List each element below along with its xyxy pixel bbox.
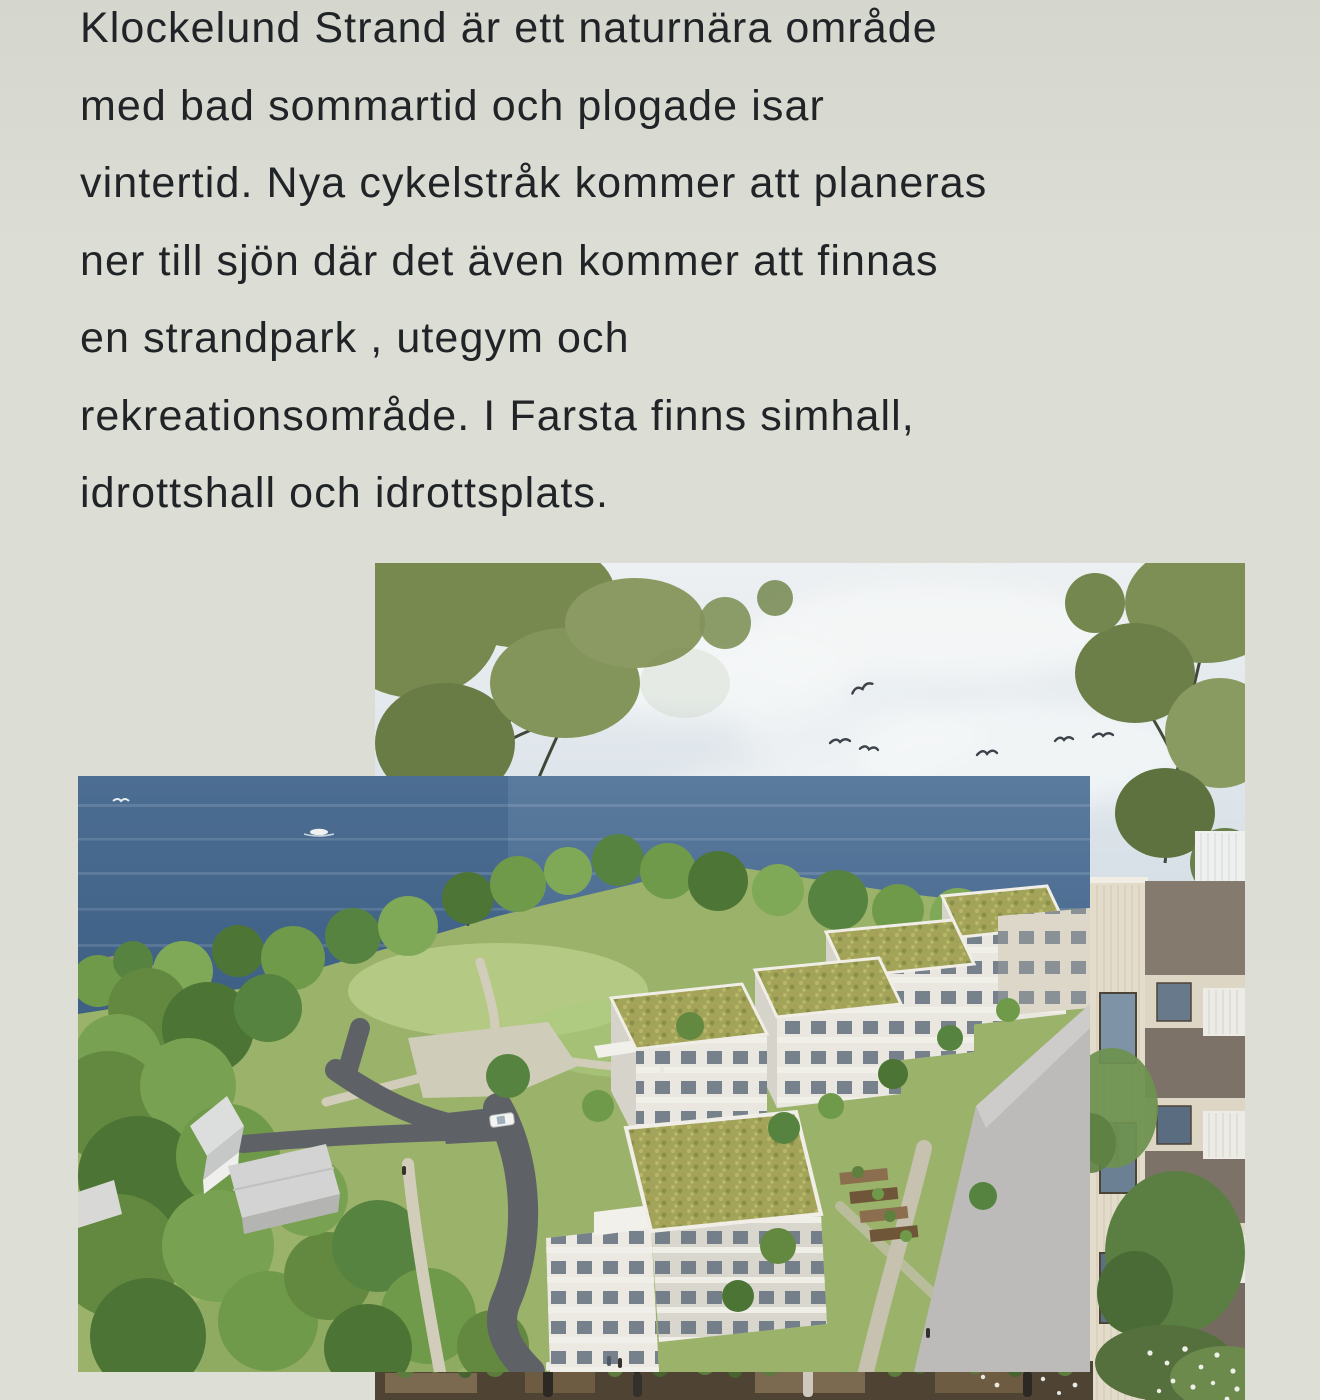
intro-line: rekreationsområde. I Farsta finns simhal… xyxy=(80,378,1250,456)
intro-line: en strandpark , utegym och xyxy=(80,300,1250,378)
facade-closeup xyxy=(1064,831,1245,1400)
page: Klockelund Strand är ett naturnära områd… xyxy=(0,0,1320,1400)
intro-line: idrottshall och idrottsplats. xyxy=(80,455,1250,533)
intro-line: med bad sommartid och plogade isar xyxy=(80,68,1250,146)
apartment-block-b xyxy=(755,958,901,1108)
intro-line: ner till sjön där det även kommer att fi… xyxy=(80,223,1250,301)
aerial-render-image xyxy=(78,776,1090,1372)
intro-paragraph: Klockelund Strand är ett naturnära områd… xyxy=(80,0,1250,533)
aerial-render-svg xyxy=(78,776,1090,1372)
intro-line: vintertid. Nya cykelstråk kommer att pla… xyxy=(80,145,1250,223)
intro-line: Klockelund Strand är ett naturnära områd… xyxy=(80,0,1250,68)
